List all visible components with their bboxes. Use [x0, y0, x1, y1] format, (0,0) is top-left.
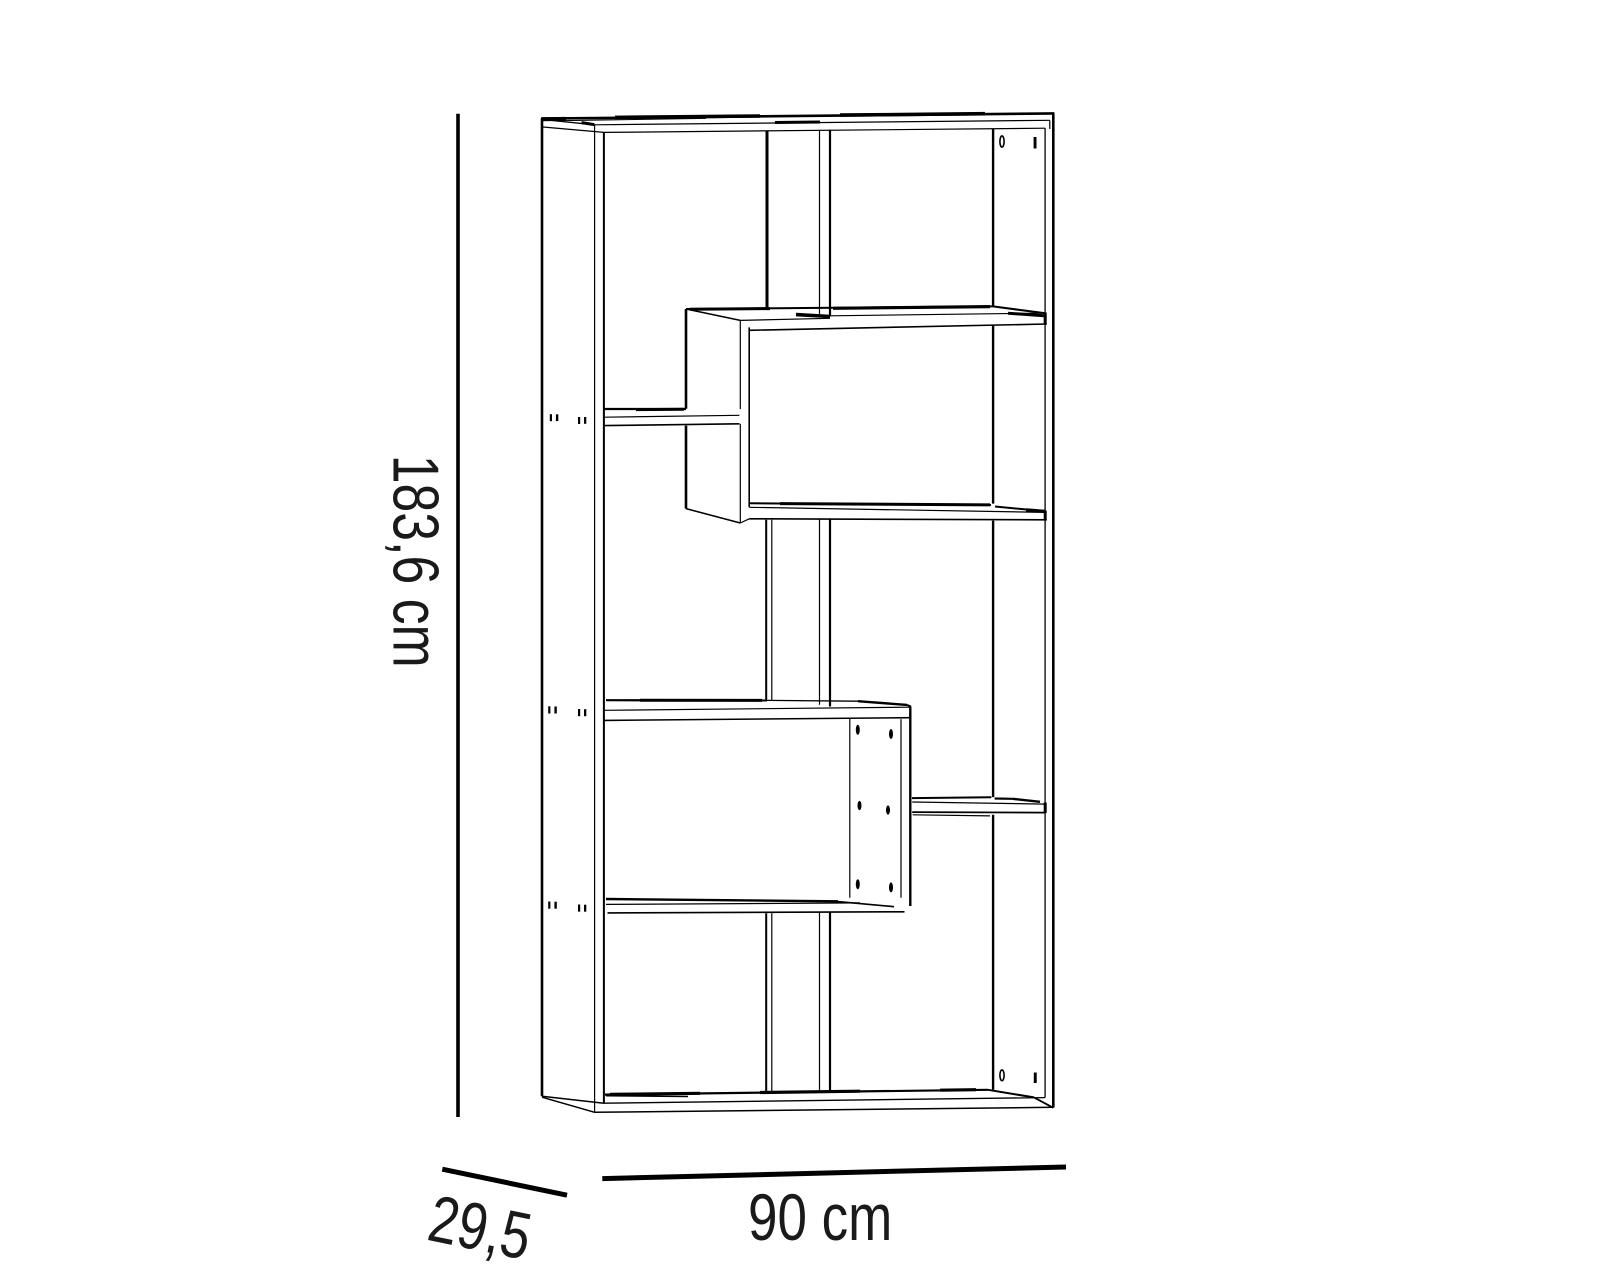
svg-text:183,6 cm: 183,6 cm [379, 455, 451, 668]
svg-text:90 cm: 90 cm [748, 1180, 892, 1255]
